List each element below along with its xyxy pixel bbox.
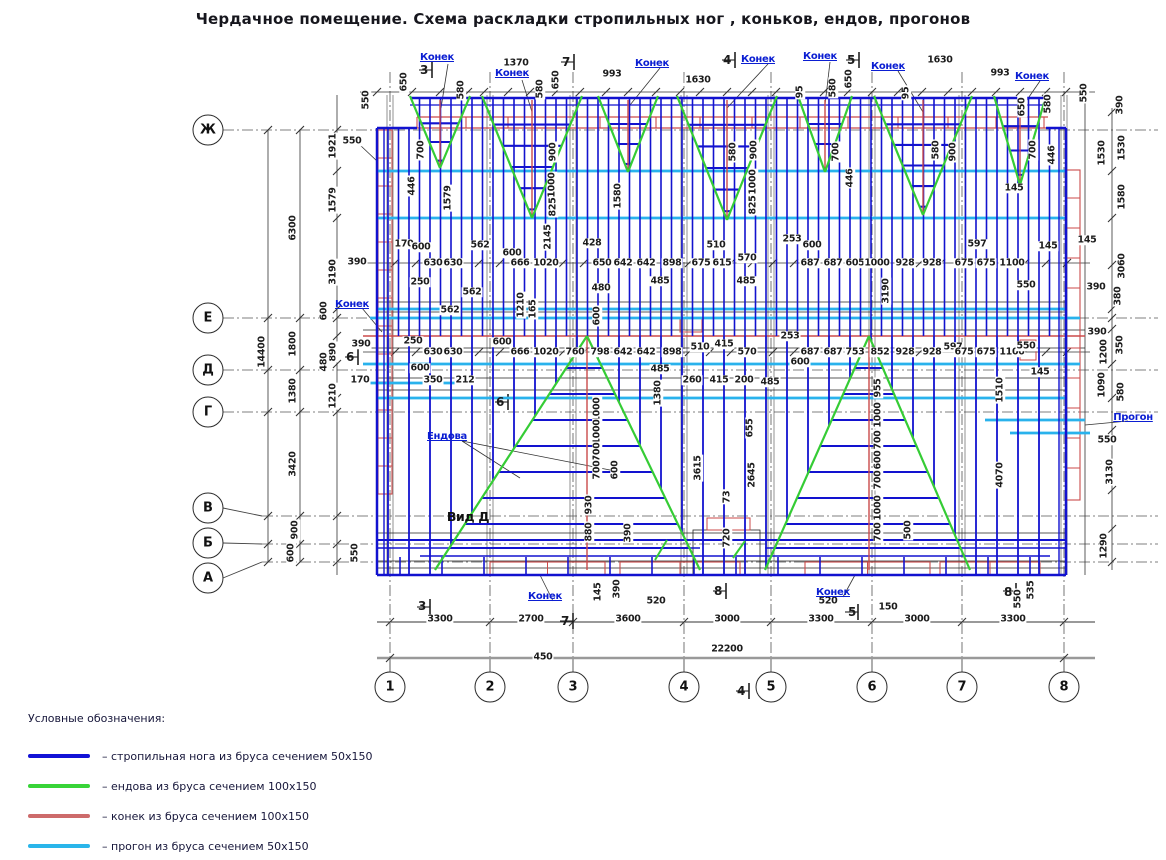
section-mark: 7	[561, 56, 571, 68]
dimension-label: 145	[1030, 367, 1051, 377]
dimension-label: 3300	[426, 614, 453, 624]
dimension-label: 145	[1004, 183, 1025, 193]
dimension-label: 955	[873, 378, 883, 399]
dimension-label: 600	[410, 363, 431, 373]
dimension-label: 1100	[998, 258, 1025, 268]
dimension-label: 928	[922, 347, 943, 357]
dimension-label: 630	[423, 347, 444, 357]
dimension-label: 675	[691, 258, 712, 268]
dimension-label: 1090	[1097, 371, 1107, 398]
dimension-label: 700	[831, 142, 841, 163]
dimension-label: 145	[1077, 235, 1098, 245]
legend-item: – конек из бруса сечением 100х150	[28, 801, 373, 831]
dimension-label: 666	[510, 258, 531, 268]
callout-label: Конек	[740, 55, 776, 65]
dimension-label: 22200	[710, 644, 744, 654]
dimension-label: 605	[845, 258, 866, 268]
section-mark: 4	[722, 54, 732, 66]
dimension-label: 928	[895, 258, 916, 268]
dimension-label: 145	[593, 582, 603, 603]
dimension-label: 1630	[926, 55, 953, 65]
dimension-label: 390	[1086, 282, 1107, 292]
dimension-label: 642	[613, 258, 634, 268]
dimension-label: 390	[351, 339, 372, 349]
dimension-label: 642	[613, 347, 634, 357]
dimension-label: 630	[443, 258, 464, 268]
dimension-label: 580	[931, 140, 941, 161]
dimension-label: 675	[976, 258, 997, 268]
dimension-label: 150	[878, 602, 899, 612]
dimension-label: 550	[1016, 280, 1037, 290]
dimension-label: 562	[462, 287, 483, 297]
dimension-label: 1000	[873, 494, 883, 521]
dimension-label: 3615	[693, 454, 703, 481]
dimension-label: 753	[845, 347, 866, 357]
axis-circle-7: 7	[947, 672, 978, 703]
dimension-label: 390	[347, 257, 368, 267]
dimension-label: 480	[591, 283, 612, 293]
dimension-label: 993	[990, 68, 1011, 78]
dimension-label: 580	[728, 142, 738, 163]
dimension-label: 570	[737, 347, 758, 357]
dimension-label: 700	[416, 140, 426, 161]
dimension-label: 550	[350, 543, 360, 564]
dimension-label: 570	[737, 253, 758, 263]
dimension-label: 3300	[807, 614, 834, 624]
dimension-label: 3190	[328, 258, 338, 285]
callout-label: Конек	[634, 59, 670, 69]
dimension-label: 485	[650, 364, 671, 374]
dimension-label: 3420	[288, 450, 298, 477]
section-mark: 5	[846, 54, 856, 66]
legend-rows: – стропильная нога из бруса сечением 50х…	[28, 741, 373, 860]
section-mark: 3	[417, 600, 427, 612]
dimension-label: 1290	[1099, 532, 1109, 559]
dimension-label: 930	[584, 495, 594, 516]
dimension-label: 650	[399, 72, 409, 93]
dimension-label: 260	[682, 375, 703, 385]
axis-circle-2: 2	[475, 672, 506, 703]
dimension-label: 1380	[288, 377, 298, 404]
dimension-label: 1000	[748, 168, 758, 195]
dimension-label: 600	[790, 357, 811, 367]
dimension-label: 1530	[1117, 134, 1127, 161]
section-mark: 6	[345, 351, 355, 363]
dimension-label: 760	[565, 347, 586, 357]
dimension-label: 390	[1087, 327, 1108, 337]
dimension-label: 642	[636, 258, 657, 268]
dimension-label: 350	[423, 375, 444, 385]
axis-circle-5: 5	[756, 672, 787, 703]
dimension-label: 14400	[257, 335, 267, 369]
dimension-label: 1510	[995, 376, 1005, 403]
dimension-label: 825	[548, 197, 558, 218]
dimension-label: 675	[954, 347, 975, 357]
dimension-label: 1530	[1097, 139, 1107, 166]
dimension-label: 200	[734, 375, 755, 385]
dimension-label: 428	[582, 238, 603, 248]
legend-item-label: – конек из бруса сечением 100х150	[102, 810, 309, 823]
dimension-label: 446	[407, 176, 417, 197]
legend-swatch-icon	[28, 784, 90, 788]
dimension-label: 95	[901, 86, 911, 101]
dimension-label: 900	[548, 142, 558, 163]
dimension-label: 415	[714, 339, 735, 349]
dimension-label: 650	[592, 258, 613, 268]
dimension-label: 1579	[328, 186, 338, 213]
callout-label: Конек	[1014, 72, 1050, 82]
dimension-label: 485	[760, 377, 781, 387]
dimension-label: 480	[319, 352, 329, 373]
dimension-label: 550	[342, 136, 363, 146]
dimension-label: 1000	[873, 401, 883, 428]
axis-circle-6: 6	[857, 672, 888, 703]
callout-label: Конек	[870, 62, 906, 72]
callout-label: Прогон	[1112, 413, 1154, 423]
dimension-label: 3600	[614, 614, 641, 624]
dimension-label: 250	[403, 336, 424, 346]
legend-item-label: – прогон из бруса сечением 50х150	[102, 840, 309, 853]
dimension-label: 825	[748, 195, 758, 216]
dimension-label: 450	[533, 652, 554, 662]
dimension-label: 535	[1026, 580, 1036, 601]
section-mark: 6	[495, 396, 505, 408]
section-mark: 3	[419, 64, 429, 76]
dimension-label: 446	[845, 168, 855, 189]
dimension-label: 898	[662, 258, 683, 268]
dimension-label: 415	[709, 375, 730, 385]
dimension-label: 993	[602, 69, 623, 79]
dimension-label: 253	[780, 331, 801, 341]
legend-swatch-icon	[28, 844, 90, 848]
callout-label: Конек	[815, 588, 851, 598]
dimension-label: 1580	[1117, 183, 1127, 210]
dimension-label: 390	[623, 523, 633, 544]
dimension-label: 500	[903, 520, 913, 541]
dimension-label: 3130	[1105, 458, 1115, 485]
callout-label: Конек	[419, 53, 455, 63]
dimension-label: 580	[828, 78, 838, 99]
dimension-label: 580	[456, 80, 466, 101]
dimension-label: 600	[592, 306, 602, 327]
dimension-label: 890	[328, 342, 338, 363]
callout-label: Ендова	[426, 432, 468, 442]
dimension-label: 687	[823, 258, 844, 268]
dimension-label: 562	[440, 305, 461, 315]
dimension-label: 700	[1028, 140, 1038, 161]
dimension-label: 600	[873, 450, 883, 471]
dimension-label: 550	[1097, 435, 1118, 445]
axis-circle-В: В	[193, 493, 224, 524]
dimension-label: 446	[1047, 145, 1057, 166]
legend: Условные обозначения: – стропильная нога…	[28, 712, 373, 860]
dimension-label: 2645	[747, 461, 757, 488]
dimension-label: 165	[528, 299, 538, 320]
dimension-label: 3000	[903, 614, 930, 624]
axis-circle-Ж: Ж	[193, 115, 224, 146]
legend-swatch-icon	[28, 814, 90, 818]
dimension-label: 650	[844, 69, 854, 90]
dimension-label: 720	[722, 528, 732, 549]
dimension-label: 1580	[613, 182, 623, 209]
legend-item: – стропильная нога из бруса сечением 50х…	[28, 741, 373, 771]
legend-swatch-icon	[28, 754, 90, 758]
dimension-label: 1210	[328, 382, 338, 409]
dimension-label: 687	[800, 258, 821, 268]
axis-circle-4: 4	[669, 672, 700, 703]
dimension-label: 550	[361, 90, 371, 111]
legend-item-label: – ендова из бруса сечением 100х150	[102, 780, 317, 793]
dimension-label: 1630	[684, 75, 711, 85]
dimension-label: 1200	[1099, 338, 1109, 365]
dimension-label: 700	[592, 460, 602, 481]
dimension-label: 1921	[328, 132, 338, 159]
callout-label: Конек	[494, 69, 530, 79]
dimension-label: 1210	[516, 291, 526, 318]
legend-item: – прогон из бруса сечением 50х150	[28, 831, 373, 860]
dimension-label: 852	[870, 347, 891, 357]
dimension-label: 510	[690, 342, 711, 352]
section-mark: 7	[560, 615, 570, 627]
dimension-label: 900	[749, 140, 759, 161]
dimension-label: 900	[948, 142, 958, 163]
dimension-label: 4070	[995, 461, 1005, 488]
dimension-label: 675	[954, 258, 975, 268]
axis-circle-Е: Е	[193, 303, 224, 334]
dimension-label: 562	[470, 240, 491, 250]
dimension-label: 600	[286, 543, 296, 564]
dimension-label: 3060	[1117, 252, 1127, 279]
dimension-label: 485	[736, 276, 757, 286]
dimension-label: 550	[1079, 83, 1089, 104]
axis-circle-1: 1	[375, 672, 406, 703]
section-mark: 4	[736, 685, 746, 697]
dimension-label: 900	[290, 520, 300, 541]
dimension-label: 390	[1115, 95, 1125, 116]
legend-heading: Условные обозначения:	[28, 712, 373, 725]
axis-circle-Г: Г	[193, 397, 224, 428]
dimension-label: 600	[492, 337, 513, 347]
callout-label: Конек	[334, 300, 370, 310]
legend-item: – ендова из бруса сечением 100х150	[28, 771, 373, 801]
dimension-label: 580	[1116, 382, 1126, 403]
dimension-label: 650	[1017, 97, 1027, 118]
dimension-label: 666	[510, 347, 531, 357]
dimension-label: 253	[782, 234, 803, 244]
dimension-label: 597	[967, 239, 988, 249]
dimension-label: 250	[410, 277, 431, 287]
dimension-label: 550	[1013, 589, 1023, 610]
dimension-label: 95	[795, 85, 805, 100]
dimension-label: 73	[722, 490, 732, 505]
dimension-label: 650	[551, 70, 561, 91]
roof-framing-drawing: Чердачное помещение. Схема раскладки стр…	[0, 0, 1166, 860]
dimension-label: 1579	[443, 184, 453, 211]
dimension-label: Вид Д	[446, 511, 490, 524]
dimension-label: 630	[443, 347, 464, 357]
dimension-label: 390	[612, 579, 622, 600]
dimension-label: 1000	[863, 258, 890, 268]
axis-circle-А: А	[193, 563, 224, 594]
dimension-label: 350	[1115, 335, 1125, 356]
dimension-label: 600	[411, 242, 432, 252]
dimension-label: 1370	[502, 58, 529, 68]
dimension-label: 580	[1043, 94, 1053, 115]
section-mark: 8	[713, 585, 723, 597]
dimension-label: 600	[802, 240, 823, 250]
dimension-label: 600	[319, 301, 329, 322]
dimension-label: 1800	[288, 330, 298, 357]
axis-circle-Д: Д	[193, 355, 224, 386]
dimension-label: 928	[895, 347, 916, 357]
dimension-label: 798	[590, 347, 611, 357]
dimension-label: 2145	[543, 223, 553, 250]
section-mark: 5	[847, 606, 857, 618]
dimension-label: 1000	[547, 171, 557, 198]
dimension-label: 1020	[532, 347, 559, 357]
dimension-label: 928	[922, 258, 943, 268]
dimension-label: 642	[636, 347, 657, 357]
dimension-label: 675	[976, 347, 997, 357]
dimension-label: 630	[423, 258, 444, 268]
dimension-label: 655	[745, 418, 755, 439]
dimension-label: 700	[873, 522, 883, 543]
dimension-label: 1380	[653, 379, 663, 406]
dimension-label: 700	[873, 470, 883, 491]
axis-circle-3: 3	[558, 672, 589, 703]
legend-item-label: – стропильная нога из бруса сечением 50х…	[102, 750, 373, 763]
dimension-label: 380	[1113, 286, 1123, 307]
dimension-label: 3300	[999, 614, 1026, 624]
dimension-label: 600	[610, 460, 620, 481]
dimension-label: 212	[455, 375, 476, 385]
dimension-label: 580	[535, 79, 545, 100]
dimension-label: 615	[712, 258, 733, 268]
callout-label: Конек	[527, 592, 563, 602]
dimension-label: 510	[706, 240, 727, 250]
axis-circle-8: 8	[1049, 672, 1080, 703]
dimension-label: 687	[823, 347, 844, 357]
axis-circle-Б: Б	[193, 528, 224, 559]
dimension-label: 880	[584, 522, 594, 543]
dimension-label: 898	[662, 347, 683, 357]
dimension-label: 3190	[881, 277, 891, 304]
dimension-label: 550	[1016, 341, 1037, 351]
callout-label: Конек	[802, 52, 838, 62]
dimension-label: 520	[646, 596, 667, 606]
dimension-label: 6300	[288, 214, 298, 241]
dimension-label: 3000	[713, 614, 740, 624]
dimension-label: 485	[650, 276, 671, 286]
dimension-label: 2700	[517, 614, 544, 624]
dimension-label: 145	[1038, 241, 1059, 251]
dimension-label: 700	[873, 430, 883, 451]
dimension-label: 1020	[532, 258, 559, 268]
dimension-label: 170	[350, 375, 371, 385]
